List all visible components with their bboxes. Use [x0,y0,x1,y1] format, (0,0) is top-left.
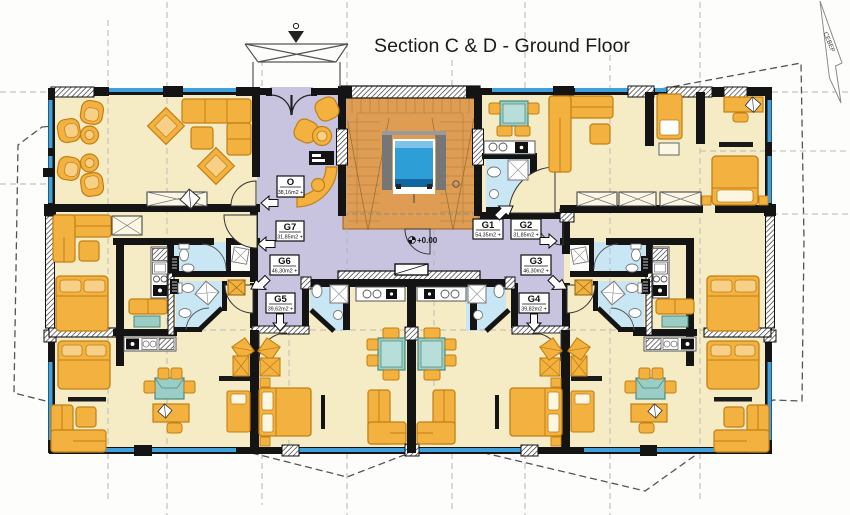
svg-text:Section C & D - Ground Floor: Section C & D - Ground Floor [374,35,630,57]
svg-text:54,35m2 +: 54,35m2 + [475,233,501,239]
svg-text:G6: G6 [278,256,291,267]
svg-text:39,62m2 +: 39,62m2 + [268,307,294,313]
svg-text:G4: G4 [528,294,541,305]
svg-text:G5: G5 [274,294,287,305]
svg-text:G2: G2 [520,220,533,231]
svg-text:G3: G3 [530,256,543,267]
svg-text:46,30m2 +: 46,30m2 + [523,269,549,275]
svg-text:31,85m2 +: 31,85m2 + [513,233,539,239]
svg-text:G1: G1 [482,220,495,231]
svg-text:39,82m2 +: 39,82m2 + [521,307,547,313]
svg-text:O: O [287,177,294,188]
svg-text:G7: G7 [284,222,297,233]
svg-text:38,16m2 +: 38,16m2 + [278,190,304,196]
svg-text:46,30m2 +: 46,30m2 + [272,269,298,275]
svg-text:+0.00: +0.00 [417,236,438,245]
svg-text:31,85m2 +: 31,85m2 + [277,235,303,241]
